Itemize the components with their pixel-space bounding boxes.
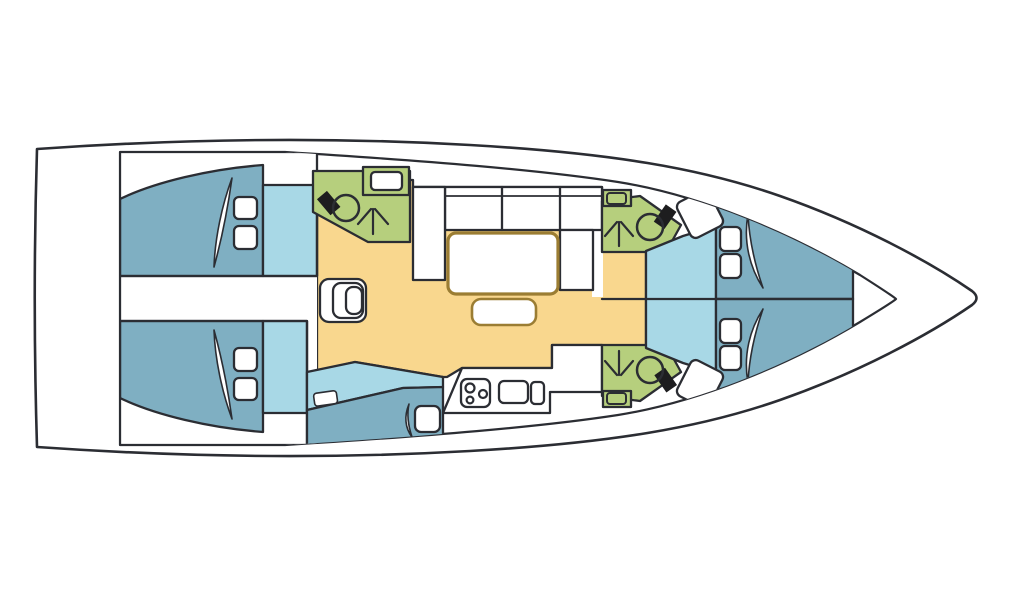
galley-stove [461, 379, 490, 407]
salon-bench [472, 299, 536, 325]
nav-berth-pillow [415, 406, 440, 432]
head-aft-sink [371, 172, 402, 190]
floor-plan-canvas [0, 0, 1024, 600]
aft-port-pillow-1 [234, 197, 257, 219]
aft-stbd-floor [263, 321, 307, 413]
salon-table [448, 233, 558, 294]
galley-sink-large [499, 381, 528, 403]
yacht-floor-plan [0, 0, 1024, 600]
fwd-stbd-pillow-2 [720, 346, 741, 370]
nav-berth-shelf [313, 390, 338, 406]
aft-stbd-pillow-2 [234, 378, 257, 400]
aft-stbd-pillow-1 [234, 348, 257, 371]
aft-port-pillow-2 [234, 226, 257, 249]
fwd-stbd-pillow-1 [720, 319, 741, 343]
fwd-port-pillow-2 [720, 254, 741, 278]
aft-port-floor [263, 185, 317, 276]
companionway-steps [320, 279, 366, 322]
galley-sink-small [531, 382, 544, 404]
fwd-port-pillow-1 [720, 227, 741, 251]
